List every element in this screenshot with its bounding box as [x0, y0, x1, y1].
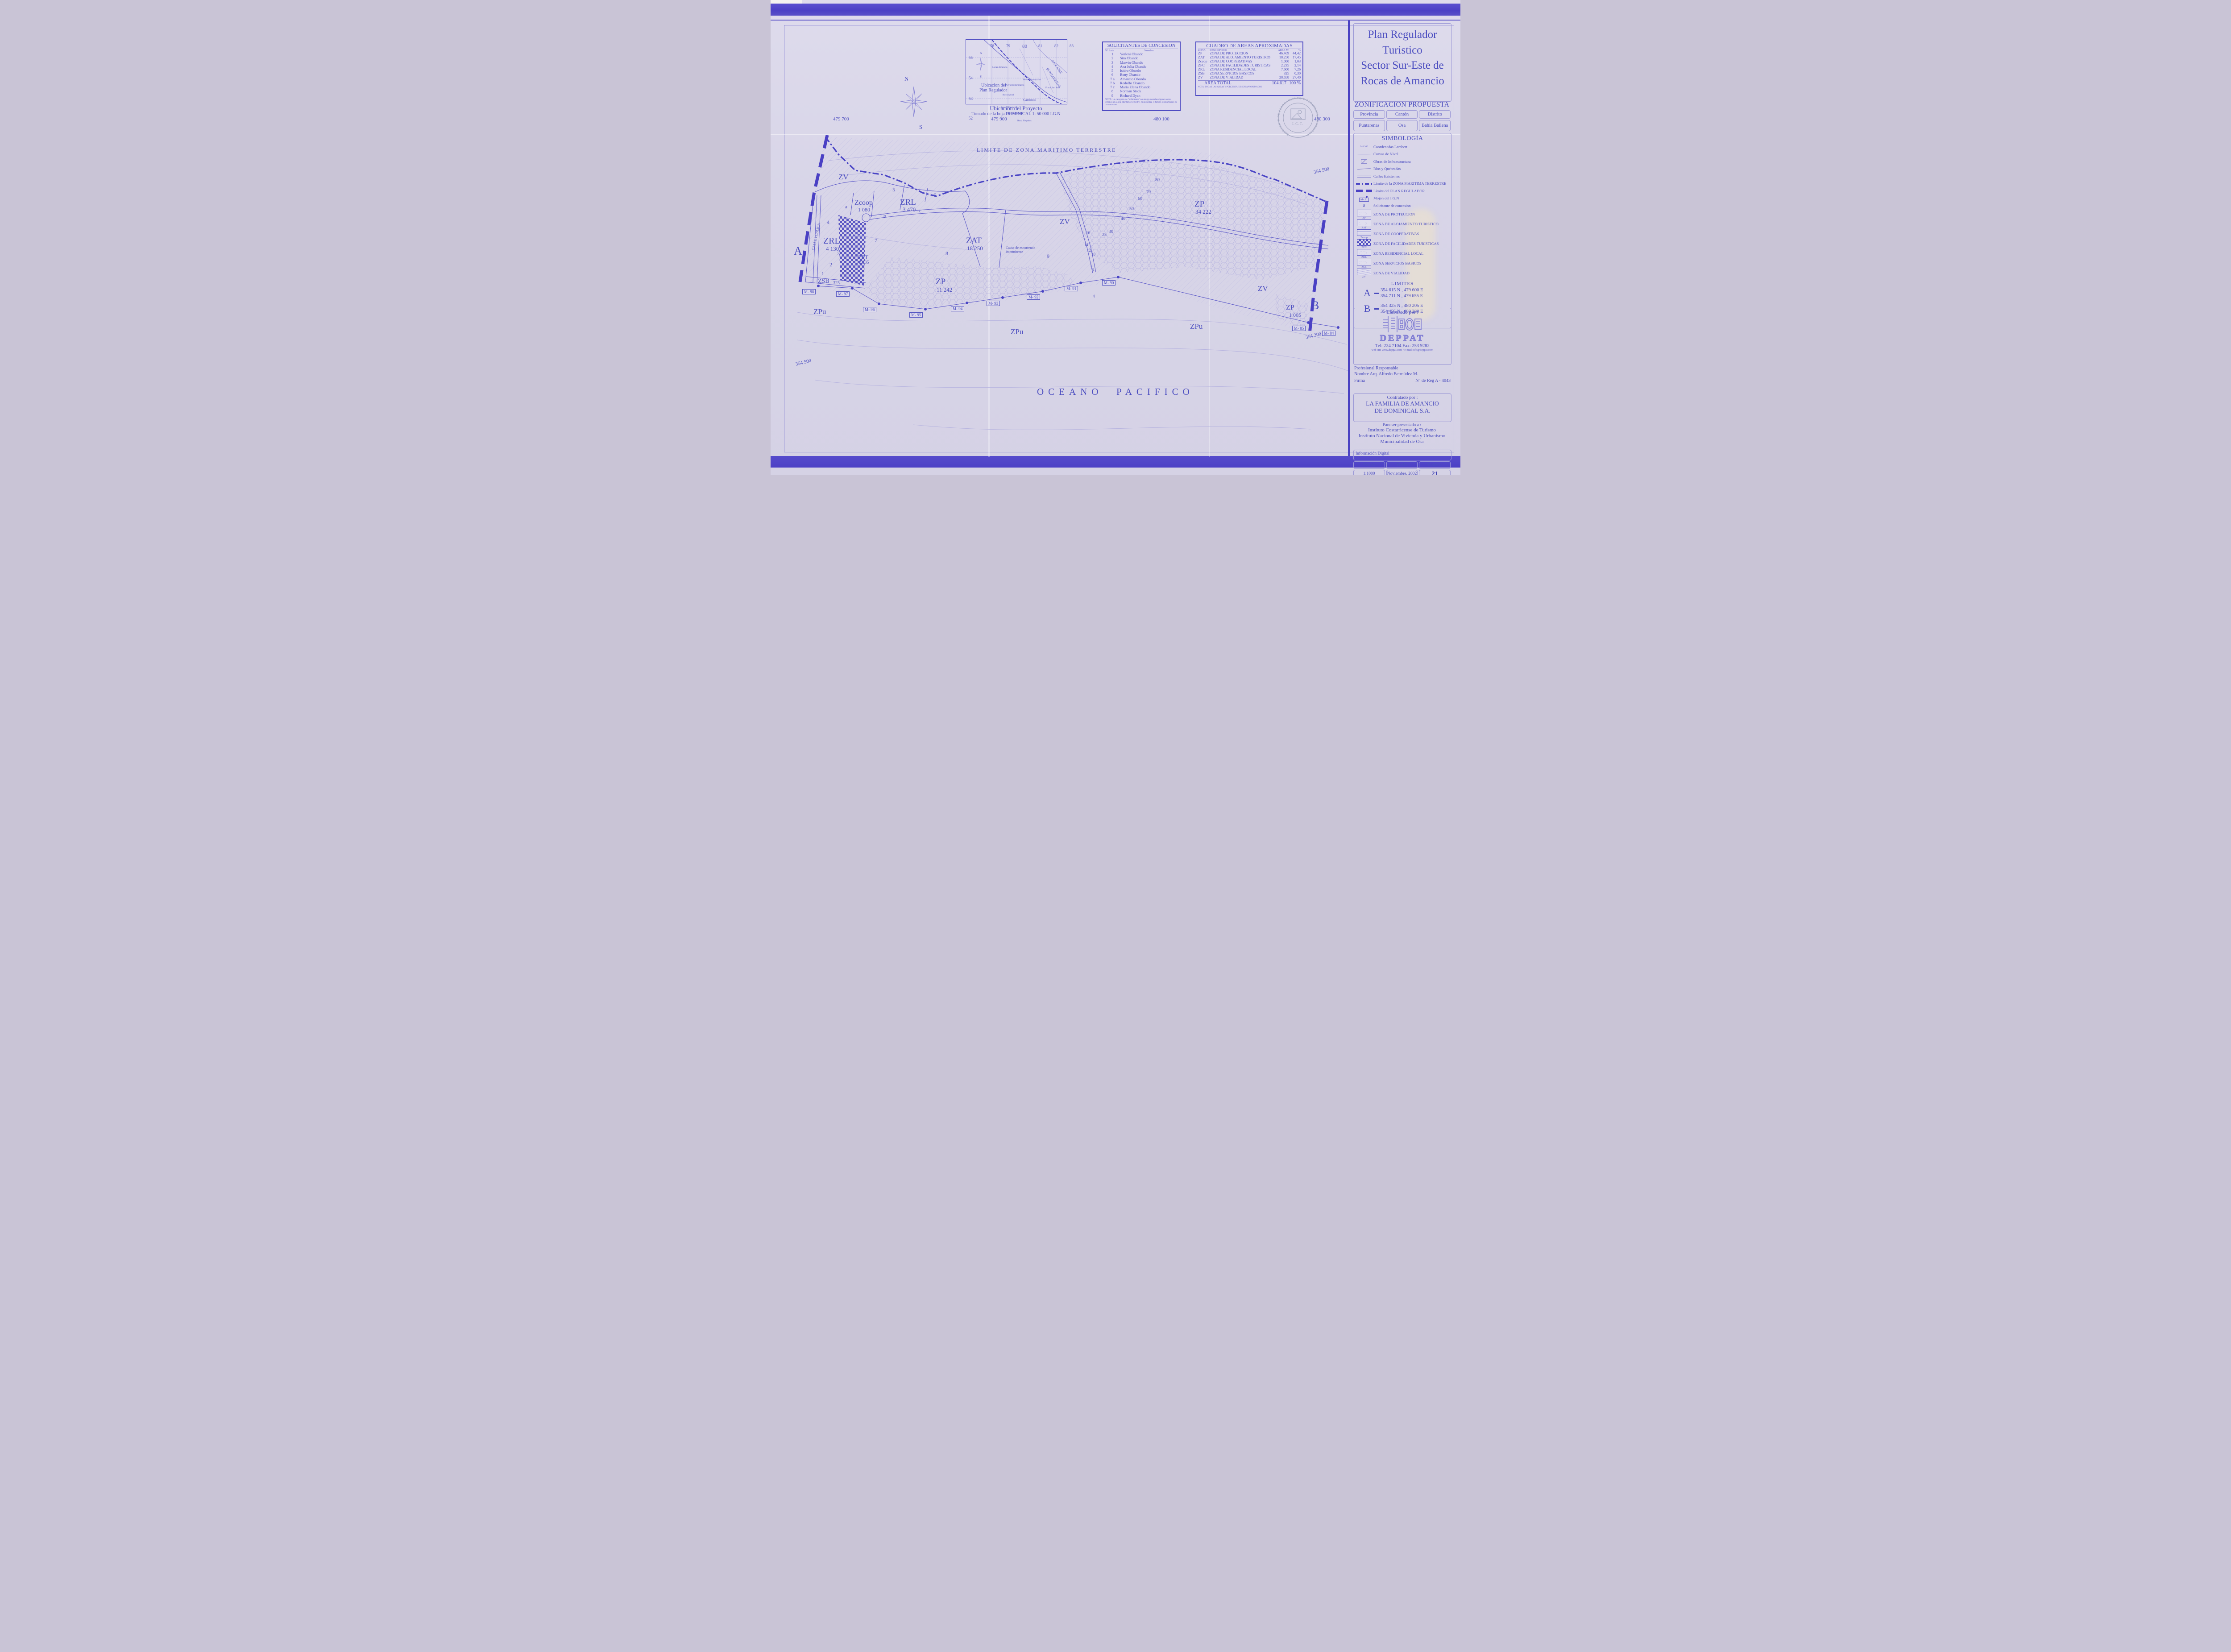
presented-line: Municipalidad de Osa: [1353, 439, 1451, 445]
mojon-marker: M- 84: [1322, 331, 1335, 336]
legend-label: Calles Existentes: [1373, 174, 1400, 178]
zone-tag: Zcoop: [1360, 236, 1368, 239]
map-label: CALLE PUBLICA: [812, 223, 821, 250]
zone-plain-symbol-icon: ZAT: [1355, 219, 1373, 229]
map-label: 18 250: [967, 245, 983, 251]
map-label: B: [1311, 300, 1319, 311]
map-label: ZP: [1286, 304, 1294, 311]
map-label: c: [919, 209, 921, 214]
legend-label: ZONA DE VIALIDAD: [1373, 271, 1410, 275]
title-line: Plan Regulador: [1354, 27, 1451, 43]
deppat-wordmark: DEPPAT: [1354, 333, 1451, 344]
elaborated-by-box: Elaborado por : DEPPAT Tel: 224 7104 Fax…: [1353, 308, 1451, 365]
legend-label: ZONA DE FACILIDADES TURISTICAS: [1373, 242, 1439, 246]
zone-plain-symbol-icon: ZSB: [1355, 259, 1373, 269]
map-label: 4: [1093, 294, 1095, 298]
map-label: 6: [1092, 268, 1094, 272]
map-label: ZV: [1258, 285, 1268, 292]
map-label: N: [904, 76, 908, 82]
map-label: 354 500: [1313, 166, 1330, 175]
map-label: ZV: [1060, 218, 1070, 225]
river-symbol-icon: [1355, 169, 1373, 169]
contracted-line: LA FAMILIA DE AMANCIO: [1354, 400, 1451, 407]
title-line: Sector Sur-Este de: [1354, 58, 1451, 74]
title-panel: Plan ReguladorTuristicoSector Sur-Este d…: [1352, 21, 1455, 456]
mojon-marker: M- 97: [836, 291, 850, 297]
map-label: ZP: [936, 277, 945, 286]
presented-line: Instituto Costarricense de Turismo: [1353, 427, 1451, 433]
legend-label: Solicitante de concesion: [1373, 204, 1411, 208]
map-label: 480 300: [1314, 117, 1330, 122]
legend-item: ZRLZONA RESIDENCIAL LOCAL: [1354, 249, 1451, 259]
professional-label: Profesional Responsable: [1354, 366, 1451, 371]
map-label: ZSB: [818, 278, 829, 285]
zone-wavy-symbol-icon: ZV: [1355, 269, 1373, 278]
street-glyph: [1357, 175, 1371, 178]
map-label: 25: [1102, 233, 1107, 237]
legend-label: ZONA RESIDENCIAL LOCAL: [1373, 252, 1423, 256]
presented-to-box: Para ser presentado a : Instituto Costar…: [1353, 423, 1451, 449]
mojon-dot: [1337, 326, 1339, 329]
map-label: 7: [875, 238, 877, 243]
map-label: OCEANO PACIFICO: [1037, 387, 1194, 397]
zmt-glyph: [1356, 183, 1372, 185]
infra-symbol-icon: [1355, 159, 1373, 164]
applicant-symbol-icon: 8: [1355, 203, 1373, 208]
deppat-logo-icon: [1382, 315, 1423, 333]
map-label: 9: [1047, 253, 1049, 259]
legend-label: Obras de Infraestructura: [1373, 160, 1411, 164]
limit-coordinate-line: 354 615 N , 479 600 E: [1381, 287, 1423, 293]
footer-value: 21: [1419, 470, 1451, 475]
zone-swatch: [1357, 249, 1371, 256]
map-label: intermitente: [1006, 250, 1023, 254]
map-label: 479 700: [833, 117, 849, 122]
map-label: 479 900: [991, 117, 1007, 122]
map-label: 8: [1091, 264, 1093, 268]
zone-plain-symbol-icon: ZP: [1355, 210, 1373, 219]
legend-item: M- 91Mojon del I.G.N: [1354, 195, 1451, 203]
map-label: 8: [945, 251, 948, 256]
map-label: 480 100: [1153, 117, 1169, 122]
mojon-dot: [1001, 296, 1004, 299]
admin-headers: ProvinciaCantónDistrito: [1353, 110, 1451, 119]
contact-phone: Tel: 224 7104 Fax: 253 9282: [1354, 344, 1451, 348]
sheet-title: Plan ReguladorTuristicoSector Sur-Este d…: [1353, 23, 1451, 102]
contour-glyph: [1357, 154, 1371, 154]
map-label: ZV: [838, 173, 849, 181]
mojon-dot: [1079, 282, 1082, 284]
mojon-marker: M- 95: [909, 312, 923, 318]
zone-lines-symbol-icon: Zcoop: [1355, 229, 1373, 239]
admin-header-cell: Distrito: [1419, 110, 1451, 119]
map-label: LIMITE DE ZONA MARITIMO TERRESTRE: [977, 147, 1116, 153]
legend-item: Límite de la ZONA MARITIMA TERRESTRE: [1354, 180, 1451, 188]
legend-label: Curvas de Nivel: [1373, 152, 1398, 156]
zone-swatch: [1357, 239, 1371, 246]
map-label: 14: [1084, 243, 1088, 247]
mojon-dot: [1041, 290, 1044, 293]
mojon-marker: M- 93: [987, 301, 1000, 306]
plan-symbol-icon: [1355, 190, 1373, 192]
mojon-dot: [1307, 321, 1310, 324]
title-line: Turistico: [1354, 43, 1451, 58]
legend-item: ZATZONA DE ALOJAMIENTO TURISTICO: [1354, 219, 1451, 229]
map-label: ZRL: [823, 236, 840, 245]
footer-header: Lámina: [1419, 461, 1451, 469]
footer-column: Escala1:1000: [1353, 461, 1385, 475]
presented-heading: Para ser presentado a :: [1353, 423, 1451, 427]
zone-swatch: [1357, 259, 1371, 265]
registration-number: N° de Reg A - 4043: [1415, 378, 1451, 383]
footer-column: FechaNoviembre, 2002: [1386, 461, 1418, 475]
infra-glyph: [1361, 159, 1367, 164]
map-label: 50: [1129, 207, 1134, 211]
map-label: 16: [1086, 231, 1090, 235]
zone-tag: ZAT: [1361, 226, 1366, 229]
legend-label: ZONA DE COOPERATIVAS: [1373, 232, 1419, 236]
map-label: 34 222: [1195, 209, 1211, 215]
mojon-marker: M- 90: [1102, 280, 1115, 286]
footer-column: Lámina21: [1419, 461, 1451, 475]
zone-swatch: [1357, 269, 1371, 275]
map-label: A: [794, 245, 802, 257]
professional-box: Profesional Responsable Nombre Arq. Alfr…: [1353, 365, 1451, 392]
legend-label: ZONA SERVICIOS BASICOS: [1373, 261, 1422, 265]
footer-value: Noviembre, 2002: [1386, 470, 1418, 475]
zone-swatch: [1357, 219, 1371, 226]
legend-item: Curvas de Nivel: [1354, 151, 1451, 158]
mojon-dot: [878, 302, 880, 305]
legend-label: Ríos y Quebradas: [1373, 167, 1401, 171]
signature-label: Firma: [1354, 378, 1365, 383]
contact-web: web site www.deppat.com / e-mail info@de…: [1354, 348, 1451, 352]
legend-item: ZVZONA DE VIALIDAD: [1354, 269, 1451, 278]
zoning-subtitle: ZONIFICACION PROPUESTA: [1353, 101, 1451, 109]
mojon-dot: [817, 285, 820, 287]
map-label: ZPu: [1190, 323, 1203, 330]
legend-item: ZFCZONA DE FACILIDADES TURISTICAS: [1354, 239, 1451, 249]
map-label: 70: [1146, 190, 1151, 195]
map-label: ZFT: [858, 254, 868, 260]
elaborated-heading: Elaborado por :: [1354, 310, 1451, 315]
admin-value-cell: Osa: [1386, 120, 1418, 131]
mojon-marker: M- 96: [863, 307, 876, 312]
legend-item: ZSBZONA SERVICIOS BASICOS: [1354, 259, 1451, 269]
legend-item: 8Solicitante de concesion: [1354, 202, 1451, 210]
lambert-glyph: 240 300: [1360, 145, 1368, 148]
map-label: 3: [837, 251, 840, 256]
admin-value-cell: Puntarenas: [1353, 120, 1385, 131]
map-label: 1 005: [1289, 312, 1301, 318]
mojon-symbol-icon: M- 91: [1355, 195, 1373, 202]
plan-sheet: I. C. T. DIRECCION DE PLANEAMIENTO Y DES…: [771, 0, 1460, 475]
legend-label: Límite del PLAN REGULADOR: [1373, 189, 1425, 193]
map-label: 30: [1109, 230, 1113, 234]
contracted-by-box: Contratado por : LA FAMILIA DE AMANCIODE…: [1353, 393, 1451, 422]
admin-header-cell: Provincia: [1353, 110, 1385, 119]
admin-values: PuntarenasOsaBahia Ballena: [1353, 120, 1451, 131]
digital-info-label: Información Digital: [1356, 451, 1451, 456]
map-label: ZAT: [966, 236, 982, 245]
map-label: ZPu: [813, 308, 826, 315]
map-label: 10: [1091, 253, 1095, 257]
map-label: Cause de escorrentia: [1006, 246, 1035, 250]
legend-item: 240 300Coordenadas Lambert: [1354, 143, 1451, 151]
scale-date-sheet-table: Escala1:1000FechaNoviembre, 2002Lámina21: [1353, 461, 1451, 475]
legend-label: ZONA DE ALOJAMIENTO TURISTICO: [1373, 222, 1439, 226]
map-label: 325: [833, 281, 840, 286]
limit-arrow-icon: ▬: [1374, 290, 1379, 295]
legend-label: ZONA DE PROTECCION: [1373, 212, 1415, 216]
mojon-marker: M- 92: [1027, 294, 1040, 300]
presented-lines: Instituto Costarricense de TurismoInstit…: [1353, 427, 1451, 445]
legend-item: Obras de Infraestructura: [1354, 158, 1451, 166]
professional-name: Nombre Arq. Alfredo Bermúdez M.: [1354, 372, 1451, 377]
street-symbol-icon: [1355, 175, 1373, 178]
mojon-marker: M- 91: [1065, 286, 1078, 291]
mojon-marker: M- 94: [951, 306, 964, 311]
lambert-symbol-icon: 240 300: [1355, 145, 1373, 148]
limit-point: A▬354 615 N , 479 600 E354 711 N , 479 6…: [1362, 287, 1451, 299]
contracted-lines: LA FAMILIA DE AMANCIODE DOMINICAL S.A.: [1354, 400, 1451, 414]
mojon-dot: [966, 302, 968, 304]
map-label: 2: [829, 262, 832, 267]
map-label: 3 470: [903, 207, 916, 212]
map-label: S: [919, 124, 922, 130]
map-label: ZPu: [1011, 328, 1023, 335]
map-label: 1: [821, 271, 824, 276]
title-line: Rocas de Amancio: [1354, 74, 1451, 89]
contracted-heading: Contratado por :: [1354, 395, 1451, 400]
legend-item: ZPZONA DE PROTECCION: [1354, 210, 1451, 219]
contour-symbol-icon: [1355, 154, 1373, 154]
map-label: 354 300: [1305, 331, 1322, 340]
zone-swatch: [1357, 229, 1371, 236]
admin-value-cell: Bahia Ballena: [1419, 120, 1451, 131]
symbology-title: SIMBOLOGÍA: [1354, 135, 1451, 142]
map-label: ZP: [1194, 200, 1204, 208]
mojon-dot: [851, 287, 854, 290]
map-label: 11 242: [937, 287, 952, 293]
legend-label: Límite de la ZONA MARITIMA TERRESTRE: [1373, 182, 1446, 186]
map-label: ZRL: [900, 198, 916, 207]
legend-label: Coordenadas Lambert: [1373, 145, 1407, 149]
legend-item: Ríos y Quebradas: [1354, 166, 1451, 173]
map-label: 4: [827, 219, 829, 225]
plan-glyph: [1356, 190, 1372, 192]
map-label: 5: [892, 187, 895, 192]
legend-list: 240 300Coordenadas LambertCurvas de Nive…: [1354, 143, 1451, 278]
admin-header-cell: Cantón: [1386, 110, 1418, 119]
contracted-line: DE DOMINICAL S.A.: [1354, 407, 1451, 414]
limits-title: LIMITES: [1354, 281, 1451, 286]
map-label: 2 235: [859, 261, 869, 265]
mojon-marker: M- 85: [1292, 326, 1306, 331]
zmt-symbol-icon: [1355, 183, 1373, 185]
symbology-box: SIMBOLOGÍA 240 300Coordenadas LambertCur…: [1353, 133, 1451, 328]
zone-tag: ZFC: [1361, 246, 1366, 249]
signature-line: [1367, 378, 1414, 383]
mojon-marker: M- 98: [802, 289, 816, 294]
zone-checker-symbol-icon: ZFC: [1355, 239, 1373, 249]
admin-location-table: ProvinciaCantónDistrito PuntarenasOsaBah…: [1353, 109, 1451, 131]
zone-tag: ZSB: [1361, 265, 1366, 269]
limit-id: A: [1362, 287, 1373, 299]
map-label: 80: [1155, 178, 1160, 182]
zone-tag: ZRL: [1361, 256, 1367, 259]
mojon-glyph: M- 91: [1359, 198, 1369, 202]
presented-line: Instituto Nacional de Vivienda y Urbanis…: [1353, 433, 1451, 439]
map-label: 60: [1138, 197, 1142, 201]
map-label: 354 500: [795, 358, 812, 367]
map-label: 6: [933, 192, 936, 198]
legend-item: Calles Existentes: [1354, 173, 1451, 180]
digital-info-box: Información Digital: [1353, 450, 1451, 460]
panel-divider: [1348, 21, 1350, 456]
footer-header: Fecha: [1386, 461, 1418, 469]
map-label: Zcoop: [854, 199, 873, 207]
zone-plain-symbol-icon: ZRL: [1355, 249, 1373, 259]
legend-item: ZcoopZONA DE COOPERATIVAS: [1354, 229, 1451, 239]
map-label: 40: [1121, 217, 1125, 221]
map-label: b: [883, 213, 886, 219]
map-label: 1 080: [858, 207, 870, 212]
map-label: 12: [1087, 248, 1091, 253]
zone-tag: ZP: [1362, 216, 1365, 219]
map-label: a: [845, 205, 847, 210]
limit-coordinate-line: 354 711 N , 479 655 E: [1381, 293, 1423, 299]
footer-header: Escala: [1353, 461, 1385, 469]
river-glyph: [1357, 168, 1371, 170]
applicant-glyph: 8: [1363, 203, 1365, 208]
zone-swatch: [1357, 210, 1371, 216]
mojon-dot: [1117, 276, 1120, 278]
legend-item: Límite del PLAN REGULADOR: [1354, 187, 1451, 195]
limit-coordinates: 354 615 N , 479 600 E354 711 N , 479 655…: [1381, 287, 1423, 299]
mojon-dot: [924, 308, 927, 311]
zone-tag: ZV: [1362, 275, 1366, 278]
legend-label: Mojon del I.G.N: [1373, 196, 1399, 200]
footer-value: 1:1000: [1353, 470, 1385, 475]
